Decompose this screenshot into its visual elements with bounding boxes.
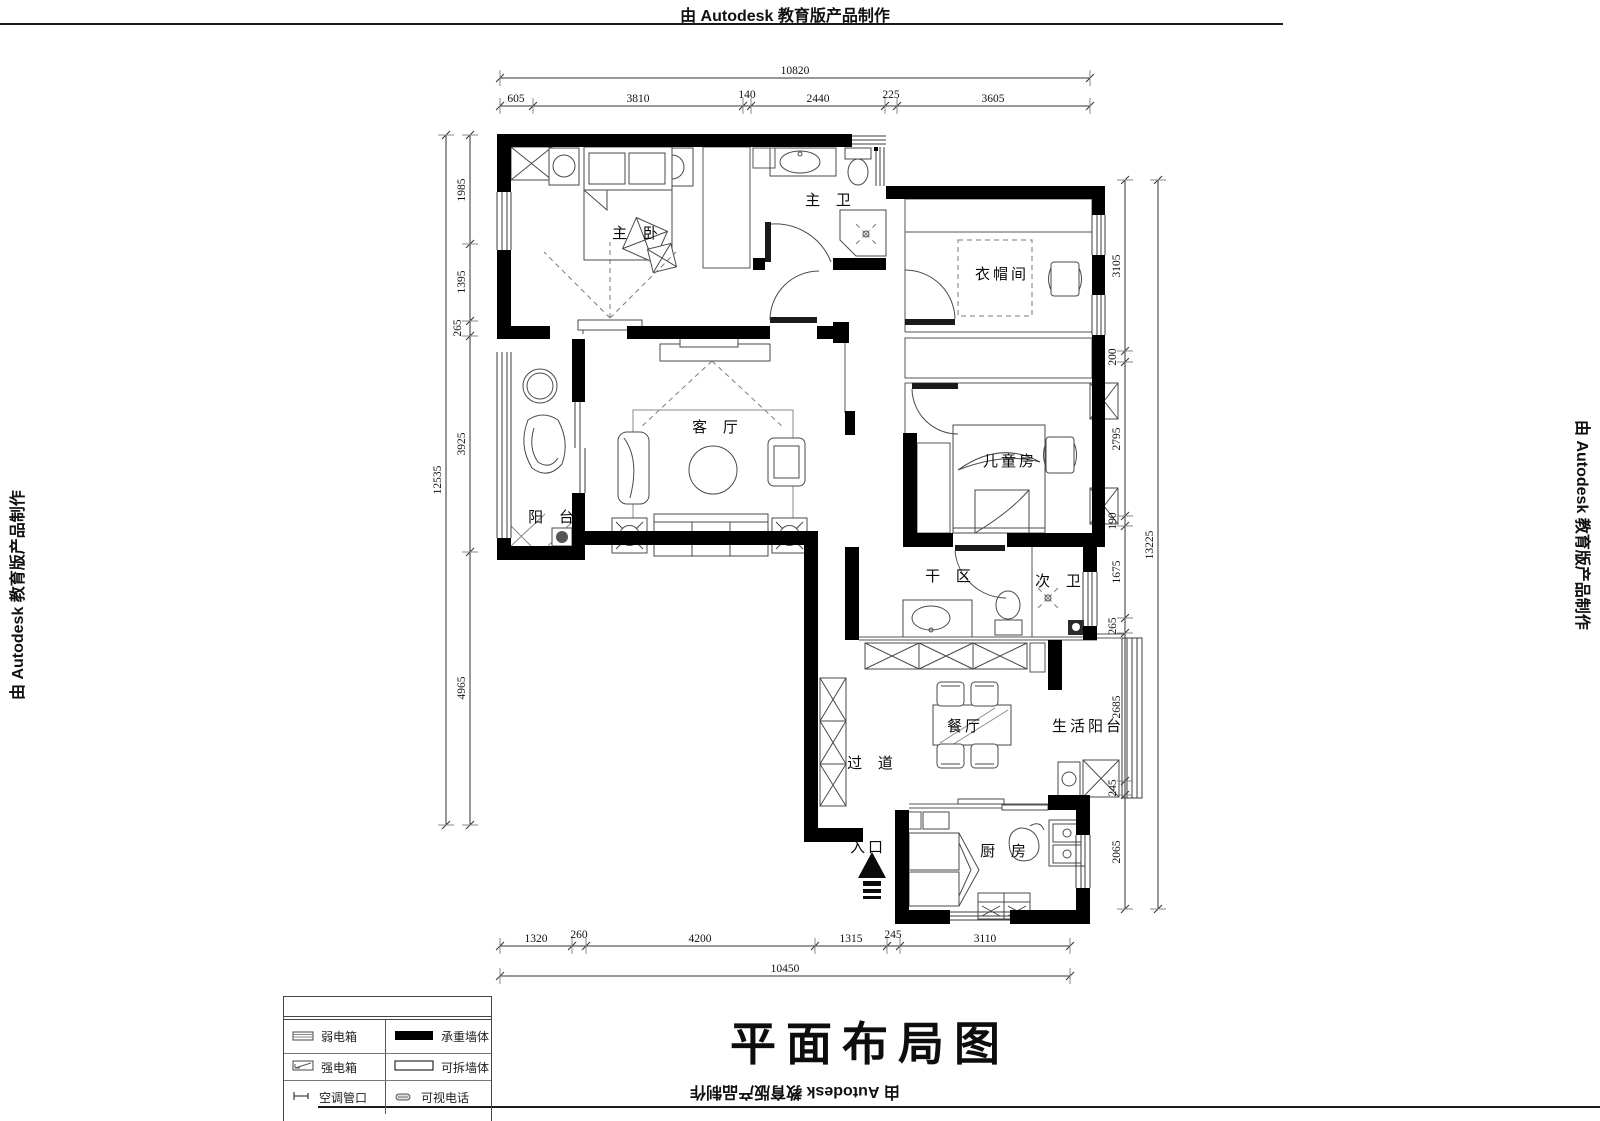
load-bearing-wall-icon — [394, 1030, 434, 1044]
legend-label: 可拆墙体 — [441, 1059, 489, 1076]
dim-right-seg: 2795 — [1111, 427, 1123, 450]
legend: 弱电箱 承重墙体 强电箱 可拆墙体 空调管口 可视 — [283, 996, 492, 1121]
room-label-dry-area: 干 区 — [925, 569, 977, 585]
dim-bottom-overall: 10450 — [771, 963, 800, 975]
dim-right-seg: 2065 — [1111, 840, 1123, 863]
room-label-balcony: 阳 台 — [528, 509, 580, 526]
room-label-entrance: 入口 — [850, 840, 886, 856]
legend-row: 空调管口 可视电话 — [284, 1081, 491, 1114]
dim-top-seg: 140 — [738, 89, 756, 101]
dim-bottom-seg: 260 — [570, 929, 588, 941]
dim-left-seg: 1985 — [456, 178, 468, 201]
room-label-dining: 餐厅 — [947, 718, 983, 735]
room-label-kids-room: 儿童房 — [983, 452, 1037, 470]
dim-left-seg: 1395 — [456, 270, 468, 293]
room-label-hallway: 过 道 — [847, 755, 899, 772]
room-label-master-bath: 主 卫 — [805, 192, 857, 209]
legend-label: 空调管口 — [319, 1089, 367, 1106]
entry-arrow — [858, 852, 886, 899]
dim-right-seg: 190 — [1107, 512, 1119, 530]
video-phone-icon — [394, 1091, 414, 1105]
room-label-master-bedroom: 主 卧 — [612, 225, 664, 242]
dim-top-seg: 225 — [882, 89, 900, 101]
dim-top-seg: 605 — [507, 93, 525, 105]
room-label-service-balcony: 生活阳台 — [1052, 718, 1124, 735]
ac-duct-icon — [292, 1090, 312, 1105]
room-label-kitchen: 厨 房 — [980, 843, 1032, 860]
legend-label: 承重墙体 — [441, 1028, 489, 1045]
legend-label: 可视电话 — [421, 1089, 469, 1106]
room-label-living-room: 客 厅 — [692, 419, 744, 436]
page: 由 Autodesk 教育版产品制作 由 Autodesk 教育版产品制作 由 … — [0, 0, 1600, 1121]
dim-right-seg: 1675 — [1111, 560, 1123, 583]
dim-top-seg: 2440 — [807, 93, 830, 105]
dim-bottom-seg: 245 — [884, 929, 902, 941]
dim-top-seg: 3810 — [627, 93, 650, 105]
legend-header — [284, 997, 491, 1020]
dim-right-seg: 2685 — [1111, 695, 1123, 718]
dim-right-seg: 3105 — [1111, 254, 1123, 277]
dim-right-overall: 13225 — [1144, 530, 1156, 559]
legend-row: 弱电箱 承重墙体 — [284, 1020, 491, 1054]
dim-left-seg: 3925 — [456, 432, 468, 455]
dim-bottom-seg: 3110 — [974, 933, 997, 945]
dim-top-overall: 10820 — [781, 65, 810, 77]
dim-right-seg: 265 — [1107, 617, 1119, 635]
legend-row: 强电箱 可拆墙体 — [284, 1054, 491, 1081]
dim-bottom-seg: 4200 — [689, 933, 712, 945]
floor-plan-svg: 10820 605 3810 140 2440 225 3605 1320 26… — [0, 0, 1600, 1121]
room-label-cloakroom: 衣帽间 — [975, 266, 1029, 283]
strong-current-box-icon — [292, 1060, 314, 1074]
dim-bottom-seg: 1315 — [840, 933, 863, 945]
drawing-title: 平面布局图 — [660, 1008, 1080, 1074]
removable-wall-icon — [394, 1060, 434, 1074]
dim-left-seg: 265 — [452, 319, 464, 337]
dim-right-seg: 245 — [1107, 779, 1119, 797]
weak-current-box-icon — [292, 1030, 314, 1044]
dim-left-overall: 12535 — [432, 465, 444, 494]
dim-right-seg: 200 — [1107, 348, 1119, 366]
dim-left-seg: 4965 — [456, 676, 468, 699]
room-label-second-bath: 次 卫 — [1035, 573, 1087, 590]
legend-label: 弱电箱 — [321, 1028, 357, 1045]
legend-label: 强电箱 — [321, 1059, 357, 1076]
dim-top-seg: 3605 — [982, 93, 1005, 105]
dim-bottom-seg: 1320 — [525, 933, 548, 945]
